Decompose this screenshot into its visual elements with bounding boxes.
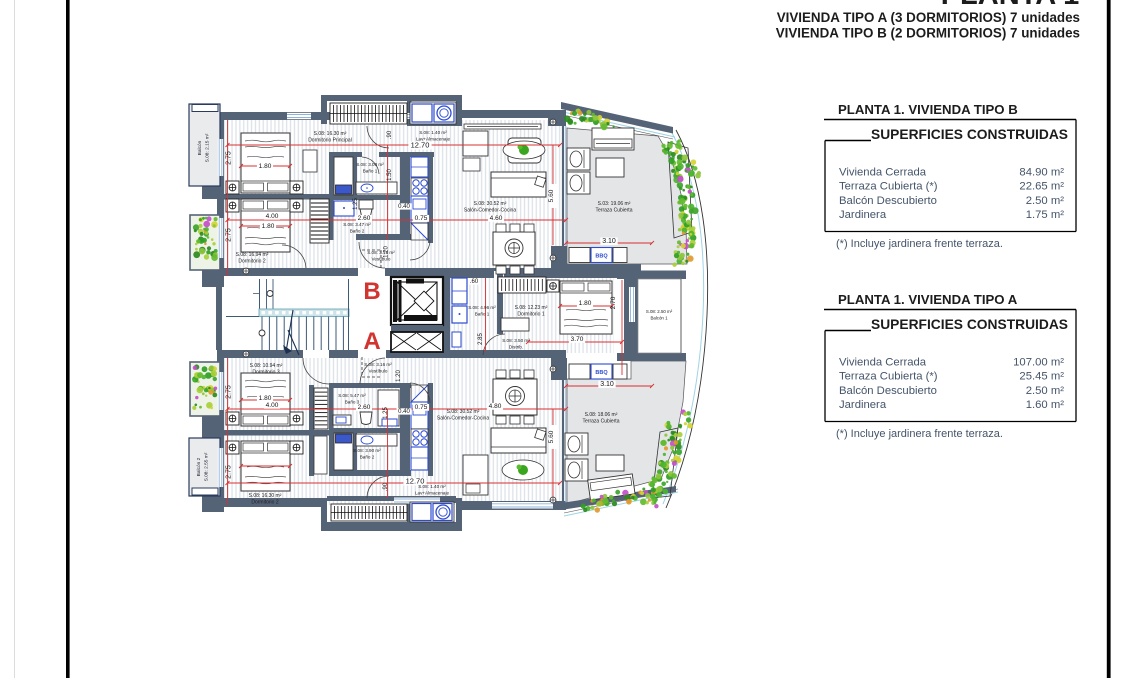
svg-text:Balcón Descubierto: Balcón Descubierto (839, 195, 937, 207)
svg-text:2.75: 2.75 (226, 465, 233, 479)
svg-text:22.65 m²: 22.65 m² (1019, 181, 1064, 193)
svg-text:2.50 m²: 2.50 m² (1026, 385, 1065, 397)
svg-text:Vestíbulo: Vestíbulo (369, 368, 388, 373)
svg-text:Vivienda Cerrada: Vivienda Cerrada (839, 357, 927, 369)
svg-text:0.40: 0.40 (398, 409, 410, 415)
svg-text:Baño 1: Baño 1 (363, 168, 378, 173)
svg-text:5.60: 5.60 (548, 430, 555, 443)
svg-text:.60: .60 (470, 279, 479, 285)
svg-text:Terraza Cubierta: Terraza Cubierta (583, 418, 620, 424)
svg-text:5.60: 5.60 (548, 189, 555, 202)
svg-text:3.10: 3.10 (602, 238, 616, 245)
svg-text:Dormitorio 2: Dormitorio 2 (238, 258, 265, 264)
svg-text:(*) Incluye jardinera frente t: (*) Incluye jardinera frente terraza. (836, 428, 1003, 440)
svg-text:0.75: 0.75 (415, 215, 428, 222)
svg-text:1.50: 1.50 (387, 169, 393, 181)
svg-text:.90: .90 (383, 482, 389, 491)
svg-text:PLANTA 1. VIVIENDA TIPO B: PLANTA 1. VIVIENDA TIPO B (838, 102, 1018, 117)
svg-text:S.08: 1.40 m²: S.08: 1.40 m² (418, 484, 446, 489)
svg-text:Terraza Cubierta: Terraza Cubierta (596, 207, 633, 213)
svg-text:Terraza Cubierta (*): Terraza Cubierta (*) (839, 371, 938, 383)
svg-text:4.00: 4.00 (266, 402, 279, 409)
svg-text:S.08: 10.94 m²: S.08: 10.94 m² (250, 363, 283, 369)
svg-text:1.25: 1.25 (383, 407, 389, 419)
svg-text:S.08: 3.47 m²: S.08: 3.47 m² (343, 222, 371, 227)
svg-text:1.75 m²: 1.75 m² (1026, 209, 1065, 221)
svg-text:(*) Incluye jardinera frente t: (*) Incluye jardinera frente terraza. (836, 238, 1003, 250)
svg-text:Balcón 1: Balcón 1 (650, 315, 668, 320)
svg-text:VIVIENDA TIPO A (3 DORMITORIOS: VIVIENDA TIPO A (3 DORMITORIOS) 7 unidad… (777, 10, 1080, 25)
svg-text:S.08: 18.06 m²: S.08: 18.06 m² (585, 412, 618, 418)
svg-text:Dormitorio 2: Dormitorio 2 (251, 499, 278, 505)
svg-text:4.60: 4.60 (490, 215, 503, 222)
svg-text:2.50 m²: 2.50 m² (1026, 195, 1065, 207)
svg-text:S.08: 3.90 m²: S.08: 3.90 m² (353, 448, 381, 453)
svg-text:S.08: 2.15 m²: S.08: 2.15 m² (205, 133, 211, 162)
svg-text:S.08: 1.40 m²: S.08: 1.40 m² (419, 130, 447, 135)
svg-text:2.60: 2.60 (358, 404, 371, 411)
svg-text:2.75: 2.75 (226, 151, 233, 165)
svg-text:S.08: 16.30 m²: S.08: 16.30 m² (249, 493, 282, 499)
svg-text:Balcón Descubierto: Balcón Descubierto (839, 385, 937, 397)
svg-text:Jardinera: Jardinera (839, 209, 887, 221)
svg-text:.90: .90 (387, 130, 393, 139)
svg-text:Salón-Comedor-Cocina: Salón-Comedor-Cocina (464, 207, 516, 213)
svg-text:S.08: 16.30 m²: S.08: 16.30 m² (314, 131, 347, 137)
svg-text:1.60 m²: 1.60 m² (1026, 399, 1065, 411)
svg-text:Vivienda Cerrada: Vivienda Cerrada (839, 167, 927, 179)
svg-text:Baño 3: Baño 3 (345, 399, 360, 404)
svg-text:B: B (363, 278, 380, 305)
svg-text:0.75: 0.75 (415, 404, 428, 411)
svg-text:Balcón: Balcón (197, 140, 203, 155)
svg-text:S.03: 19.06 m²: S.03: 19.06 m² (598, 201, 631, 207)
svg-text:S.08: 30.52 m²: S.08: 30.52 m² (474, 201, 507, 207)
svg-text:BBQ: BBQ (595, 370, 608, 376)
svg-text:S.08: 16.94 m²: S.08: 16.94 m² (236, 252, 269, 258)
svg-text:A: A (363, 328, 380, 355)
svg-text:1.80: 1.80 (579, 300, 592, 307)
svg-text:Balcón 2: Balcón 2 (196, 457, 202, 476)
svg-text:SUPERFICIES CONSTRUIDAS: SUPERFICIES CONSTRUIDAS (871, 127, 1068, 142)
svg-text:S.08: 12.23 m²: S.08: 12.23 m² (515, 305, 548, 311)
svg-text:Dormitorio 1: Dormitorio 1 (517, 311, 544, 317)
svg-text:Lav+Almacenaje: Lav+Almacenaje (416, 136, 451, 141)
svg-text:2.75: 2.75 (226, 385, 233, 399)
svg-text:2.85: 2.85 (478, 333, 484, 345)
svg-text:1.20: 1.20 (396, 370, 402, 382)
svg-text:S.08: 4.96 m²: S.08: 4.96 m² (468, 305, 496, 310)
svg-text:S.08: 30.52 m²: S.08: 30.52 m² (447, 409, 480, 415)
svg-text:Lav+Almacenaje: Lav+Almacenaje (415, 490, 450, 495)
svg-text:S.08: 5.47 m²: S.08: 5.47 m² (338, 393, 366, 398)
svg-text:S.08: 3.00 m²: S.08: 3.00 m² (356, 162, 384, 167)
svg-text:1.25: 1.25 (353, 198, 359, 210)
svg-text:Salón-Comedor-Cocina: Salón-Comedor-Cocina (437, 415, 489, 421)
svg-text:2.75: 2.75 (226, 228, 233, 242)
svg-text:3.10: 3.10 (600, 381, 614, 388)
svg-text:0.40: 0.40 (398, 204, 410, 210)
svg-text:Baño 2: Baño 2 (350, 228, 365, 233)
svg-text:4.00: 4.00 (266, 213, 279, 220)
svg-text:S.08: 2.50 m²: S.08: 2.50 m² (646, 309, 673, 314)
svg-text:3.70: 3.70 (571, 336, 584, 343)
svg-text:S.08: 3.16 m²: S.08: 3.16 m² (364, 362, 392, 367)
svg-text:Terraza Cubierta (*): Terraza Cubierta (*) (839, 181, 938, 193)
svg-text:Baño 1: Baño 1 (475, 311, 490, 316)
svg-text:S.08: 2.55 m²: S.08: 2.55 m² (204, 452, 210, 481)
svg-text:S.08: 3.50 m²: S.08: 3.50 m² (502, 338, 530, 343)
svg-text:Distrib.: Distrib. (509, 344, 523, 349)
svg-text:PLANTA 1. VIVIENDA TIPO A: PLANTA 1. VIVIENDA TIPO A (838, 292, 1018, 307)
svg-text:SUPERFICIES CONSTRUIDAS: SUPERFICIES CONSTRUIDAS (871, 317, 1068, 332)
svg-text:12.70: 12.70 (411, 141, 430, 150)
svg-text:84.90 m²: 84.90 m² (1019, 167, 1064, 179)
svg-text:1.80: 1.80 (259, 163, 272, 170)
svg-text:Baño 2: Baño 2 (360, 454, 375, 459)
svg-text:BBQ: BBQ (595, 254, 608, 260)
svg-text:Dormitorio 3: Dormitorio 3 (252, 369, 279, 375)
svg-text:VIVIENDA TIPO B (2 DORMITORIOS: VIVIENDA TIPO B (2 DORMITORIOS) 7 unidad… (776, 26, 1080, 41)
svg-text:107.00 m²: 107.00 m² (1013, 357, 1064, 369)
svg-text:Jardinera: Jardinera (839, 399, 887, 411)
svg-text:1.80: 1.80 (259, 395, 272, 402)
svg-text:2.70: 2.70 (610, 296, 617, 309)
svg-text:25.45 m²: 25.45 m² (1019, 371, 1064, 383)
svg-text:2.60: 2.60 (358, 215, 371, 222)
svg-text:1.80: 1.80 (262, 223, 275, 230)
svg-text:Dormitorio Principal: Dormitorio Principal (308, 137, 352, 143)
svg-text:4.80: 4.80 (489, 403, 502, 410)
